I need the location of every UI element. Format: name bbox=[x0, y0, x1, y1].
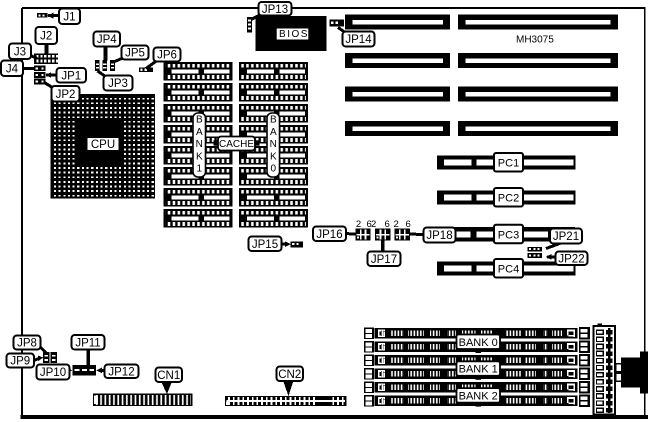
svg-text:6: 6 bbox=[406, 219, 411, 230]
svg-text:CN1: CN1 bbox=[157, 370, 180, 382]
svg-text:JP15: JP15 bbox=[252, 239, 278, 251]
svg-text:J3: J3 bbox=[14, 46, 26, 58]
svg-text:BANK 1: BANK 1 bbox=[459, 364, 498, 376]
svg-text:JP10: JP10 bbox=[40, 367, 66, 379]
svg-text:PC1: PC1 bbox=[498, 158, 519, 170]
svg-text:A: A bbox=[270, 127, 277, 138]
svg-text:6: 6 bbox=[384, 219, 389, 230]
svg-text:B: B bbox=[196, 115, 203, 126]
svg-text:BANK 2: BANK 2 bbox=[459, 391, 498, 403]
svg-text:JP8: JP8 bbox=[17, 338, 37, 350]
svg-text:A: A bbox=[196, 127, 203, 138]
svg-text:BANK 0: BANK 0 bbox=[459, 337, 498, 349]
svg-text:JP6: JP6 bbox=[157, 50, 177, 62]
svg-text:JP16: JP16 bbox=[316, 229, 342, 241]
svg-text:JP14: JP14 bbox=[345, 34, 372, 46]
svg-text:PC4: PC4 bbox=[498, 264, 519, 276]
svg-text:K: K bbox=[270, 151, 277, 162]
svg-text:BIOS: BIOS bbox=[279, 29, 309, 40]
svg-text:CN2: CN2 bbox=[278, 369, 301, 381]
svg-text:J4: J4 bbox=[6, 63, 19, 75]
svg-text:JP13: JP13 bbox=[262, 4, 288, 16]
svg-text:0: 0 bbox=[271, 164, 277, 175]
svg-text:J1: J1 bbox=[63, 11, 75, 23]
svg-text:JP4: JP4 bbox=[97, 34, 117, 46]
svg-text:JP5: JP5 bbox=[125, 48, 145, 60]
svg-text:JP3: JP3 bbox=[108, 78, 128, 90]
svg-text:JP11: JP11 bbox=[75, 337, 100, 349]
svg-text:JP1: JP1 bbox=[61, 70, 81, 82]
svg-text:JP21: JP21 bbox=[553, 231, 579, 243]
svg-text:K: K bbox=[196, 151, 203, 162]
svg-text:PC3: PC3 bbox=[498, 230, 519, 242]
svg-text:JP9: JP9 bbox=[10, 356, 30, 368]
svg-text:CACHE: CACHE bbox=[219, 139, 254, 150]
svg-text:2: 2 bbox=[371, 219, 376, 230]
svg-text:B: B bbox=[270, 115, 277, 126]
svg-text:JP17: JP17 bbox=[371, 254, 397, 266]
svg-text:CPU: CPU bbox=[91, 139, 115, 151]
svg-text:JP18: JP18 bbox=[426, 230, 452, 242]
svg-text:JP12: JP12 bbox=[108, 366, 134, 378]
svg-text:N: N bbox=[196, 139, 203, 150]
svg-text:J2: J2 bbox=[40, 31, 52, 43]
svg-text:2: 2 bbox=[393, 219, 398, 230]
svg-text:MH3075: MH3075 bbox=[516, 35, 554, 46]
svg-text:2: 2 bbox=[356, 219, 361, 230]
svg-text:N: N bbox=[270, 139, 277, 150]
svg-text:JP22: JP22 bbox=[558, 253, 584, 265]
svg-text:PC2: PC2 bbox=[498, 193, 519, 205]
svg-text:JP2: JP2 bbox=[56, 89, 76, 101]
svg-text:1: 1 bbox=[197, 164, 203, 175]
